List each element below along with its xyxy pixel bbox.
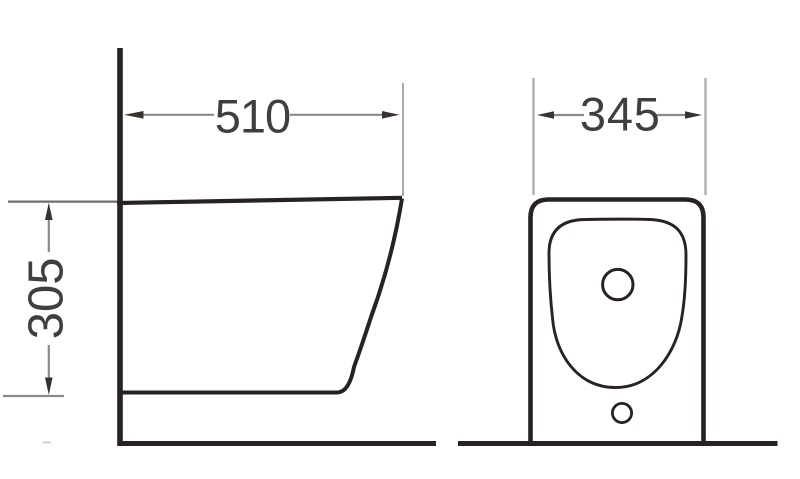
svg-text:305: 305 <box>20 258 74 340</box>
svg-text:345: 345 <box>580 87 661 140</box>
svg-text:510: 510 <box>215 89 290 142</box>
